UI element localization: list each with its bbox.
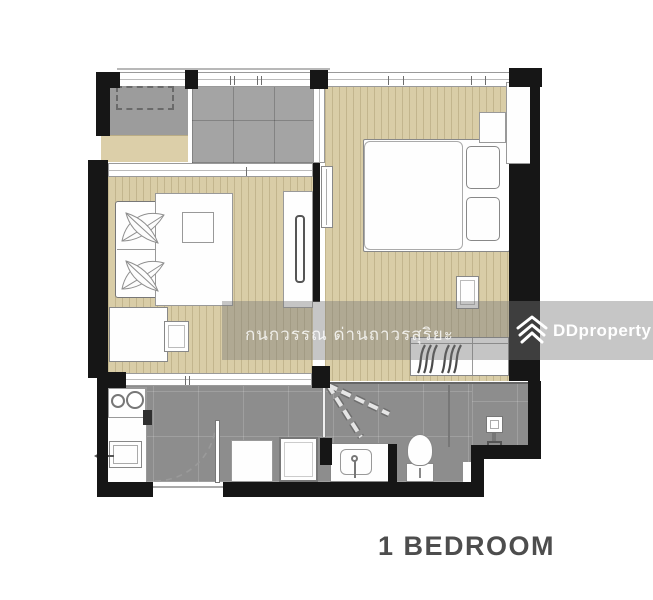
shower-stand bbox=[492, 433, 496, 441]
partition-tick bbox=[185, 376, 186, 385]
shower-glass-partition bbox=[448, 385, 450, 447]
window-mullion-tick bbox=[471, 76, 472, 85]
wall-right-upper bbox=[530, 85, 540, 164]
watermark-brand-text: DDproperty bbox=[553, 321, 652, 341]
wall-column bbox=[185, 70, 198, 89]
wall-bottom-right-vertical bbox=[471, 445, 484, 497]
wall-niche-slit bbox=[463, 462, 471, 482]
wall-balcony-left bbox=[96, 72, 110, 136]
door-glass-line bbox=[319, 89, 320, 162]
watermark-band: กนกวรรณ ด่านถาวรสุริยะ DDproperty bbox=[222, 301, 653, 360]
window-mullion-tick bbox=[403, 76, 404, 85]
wall-divider-rooms bbox=[313, 163, 320, 302]
entrance-threshold bbox=[153, 486, 223, 488]
wall-living-kitchen-chunk bbox=[97, 372, 126, 388]
window-mullion-tick bbox=[230, 76, 231, 85]
balcony-door-band bbox=[313, 88, 325, 163]
bed-pillow bbox=[466, 197, 500, 241]
entrance-door-leaf bbox=[215, 420, 220, 483]
toilet-flush-line bbox=[419, 468, 421, 478]
shower-floor bbox=[472, 383, 529, 447]
window-mullion-tick bbox=[261, 76, 262, 85]
bedside-table bbox=[109, 307, 168, 362]
shower-mixer bbox=[486, 416, 503, 433]
stove-burner bbox=[111, 394, 125, 408]
plan-title: 1 BEDROOM bbox=[378, 531, 555, 562]
leaf-pillow-decor bbox=[118, 203, 176, 297]
wall-bottom-left bbox=[97, 482, 153, 497]
balcony-planter-ledge bbox=[101, 135, 188, 162]
floor-plan-image: กนกวรรณ ด่านถาวรสุริยะ DDproperty 1 BEDR… bbox=[0, 0, 653, 600]
wall-bathroom-right bbox=[528, 381, 541, 459]
bedside-stool bbox=[164, 321, 189, 352]
stove-burner bbox=[126, 391, 144, 409]
bathroom-top-line bbox=[330, 382, 529, 384]
window-mullion-tick bbox=[485, 76, 486, 85]
wall-left-main bbox=[88, 160, 108, 378]
bed-pillow bbox=[466, 146, 500, 189]
wardrobe-notch bbox=[479, 112, 506, 143]
partition-tick bbox=[189, 376, 190, 385]
wall-divider-chunk bbox=[312, 366, 330, 388]
ac-condenser-unit bbox=[116, 86, 174, 110]
window-mullion-tick bbox=[246, 167, 247, 176]
refrigerator bbox=[279, 437, 318, 482]
wall-left-kitchen bbox=[97, 378, 108, 497]
folding-door-icon bbox=[322, 380, 397, 442]
living-room-window-band bbox=[108, 163, 313, 177]
wash-basin bbox=[340, 449, 372, 475]
window-mullion-tick bbox=[257, 76, 258, 85]
kitchen-sliding-partition bbox=[124, 373, 312, 386]
bathroom-door-leaf bbox=[322, 385, 326, 438]
wall-hall-bath-chunk bbox=[320, 438, 332, 465]
wall-toilet-stub bbox=[388, 444, 397, 482]
entrance-door-swing bbox=[150, 414, 222, 486]
appliance-box bbox=[231, 440, 273, 482]
sliding-door-panel bbox=[321, 166, 333, 228]
bed-mattress bbox=[364, 141, 463, 250]
balcony-floor bbox=[192, 87, 317, 163]
watermark-owner-text: กนกวรรณ ด่านถาวรสุริยะ bbox=[245, 321, 454, 348]
window-glass-line bbox=[109, 170, 312, 171]
folded-duvet bbox=[182, 212, 214, 243]
basin-tap-dot bbox=[351, 455, 358, 462]
toilet-bowl bbox=[407, 434, 433, 466]
ddproperty-chevrons-icon bbox=[515, 314, 549, 346]
window-mullion-tick bbox=[388, 76, 389, 85]
wardrobe bbox=[506, 82, 532, 164]
partition-glass-line bbox=[125, 379, 311, 380]
tv-screen bbox=[295, 215, 305, 283]
balcony-railing-line bbox=[117, 68, 330, 70]
wall-bottom-main bbox=[223, 482, 473, 497]
window-mullion-tick bbox=[234, 76, 235, 85]
wall-column bbox=[310, 70, 328, 89]
